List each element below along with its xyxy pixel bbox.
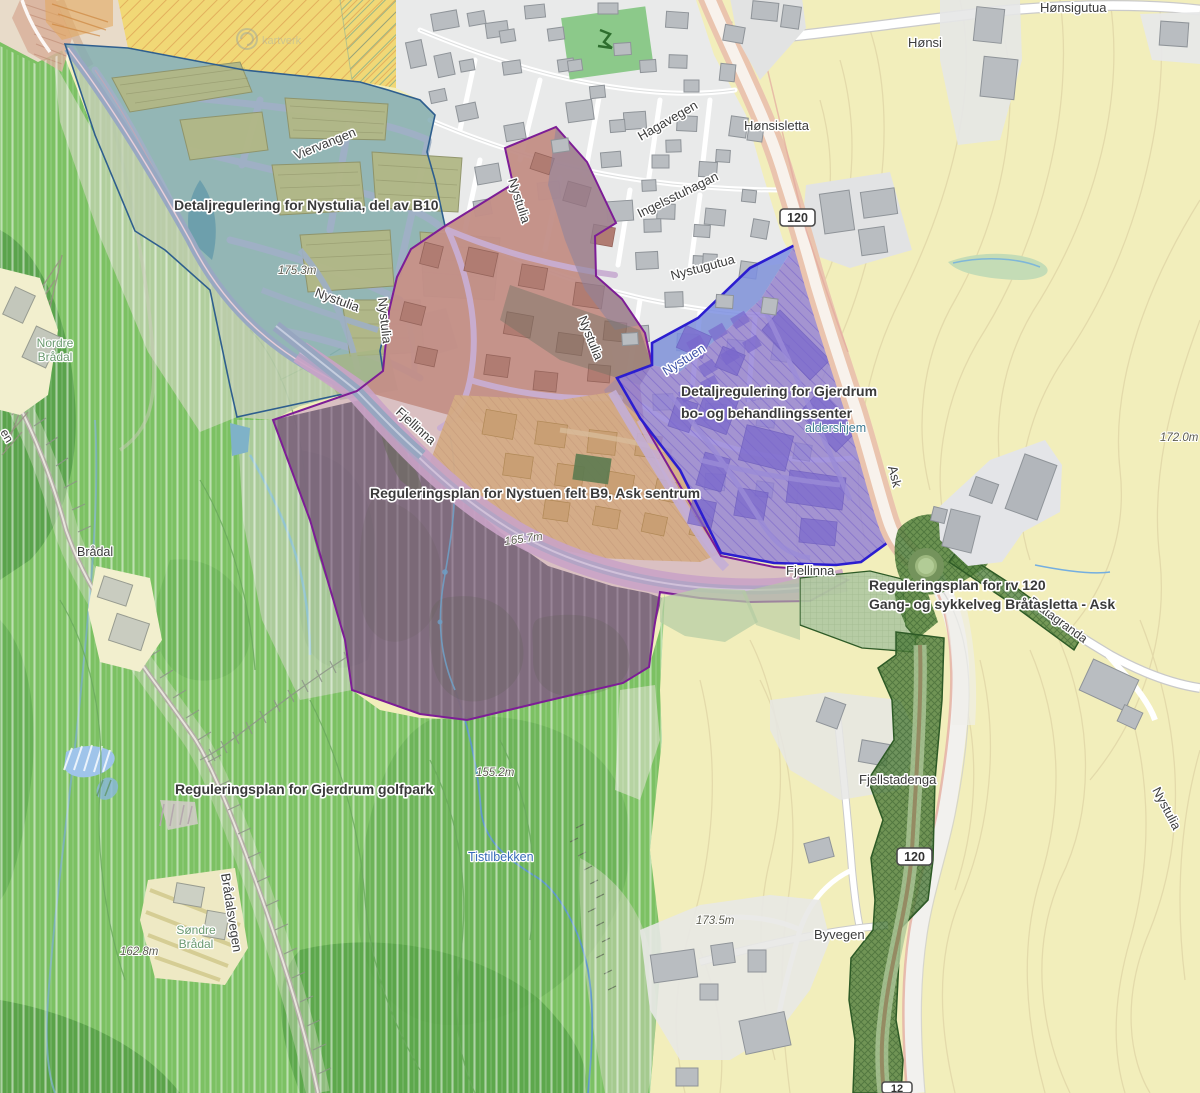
svg-text:120: 120 [904,850,925,864]
svg-text:120: 120 [787,211,808,225]
svg-text:172.0m: 172.0m [1160,432,1199,444]
svg-text:Søndre: Søndre [176,923,216,937]
svg-text:Brådal: Brådal [179,937,214,951]
svg-text:Reguleringsplan for rv 120: Reguleringsplan for rv 120 [869,577,1046,593]
svg-text:12: 12 [891,1083,903,1093]
svg-text:155.2m: 155.2m [476,767,515,779]
svg-text:Hønsisletta: Hønsisletta [744,118,810,133]
svg-text:Hønsi: Hønsi [908,35,942,50]
svg-text:kartverk: kartverk [262,35,302,47]
svg-text:Byvegen: Byvegen [814,927,865,942]
svg-text:Brådal: Brådal [77,545,113,559]
svg-text:Reguleringsplan for Nystuen fe: Reguleringsplan for Nystuen felt B9, Ask… [370,485,700,501]
svg-text:bo- og behandlingssenter: bo- og behandlingssenter [681,405,853,421]
svg-text:162.8m: 162.8m [120,946,159,958]
svg-text:Gang- og sykkelveg Bråtasletta: Gang- og sykkelveg Bråtasletta - Ask [869,596,1115,612]
svg-text:Detaljregulering for Gjerdrum: Detaljregulering for Gjerdrum [681,383,877,399]
svg-text:Fjellstadenga: Fjellstadenga [859,772,937,787]
svg-text:Hønsigutua: Hønsigutua [1040,0,1107,15]
svg-text:Reguleringsplan for Gjerdrum g: Reguleringsplan for Gjerdrum golfpark [175,781,433,797]
svg-text:Tistilbekken: Tistilbekken [468,850,534,864]
svg-text:Nordre: Nordre [37,336,74,350]
svg-text:173.5m: 173.5m [696,915,735,927]
svg-text:aldershjem: aldershjem [805,421,866,435]
svg-text:Detaljregulering for Nystulia,: Detaljregulering for Nystulia, del av B1… [174,197,439,213]
svg-text:Brådal: Brådal [38,350,73,364]
svg-text:175.3m: 175.3m [278,265,317,277]
svg-text:Fjellinna: Fjellinna [786,563,835,578]
